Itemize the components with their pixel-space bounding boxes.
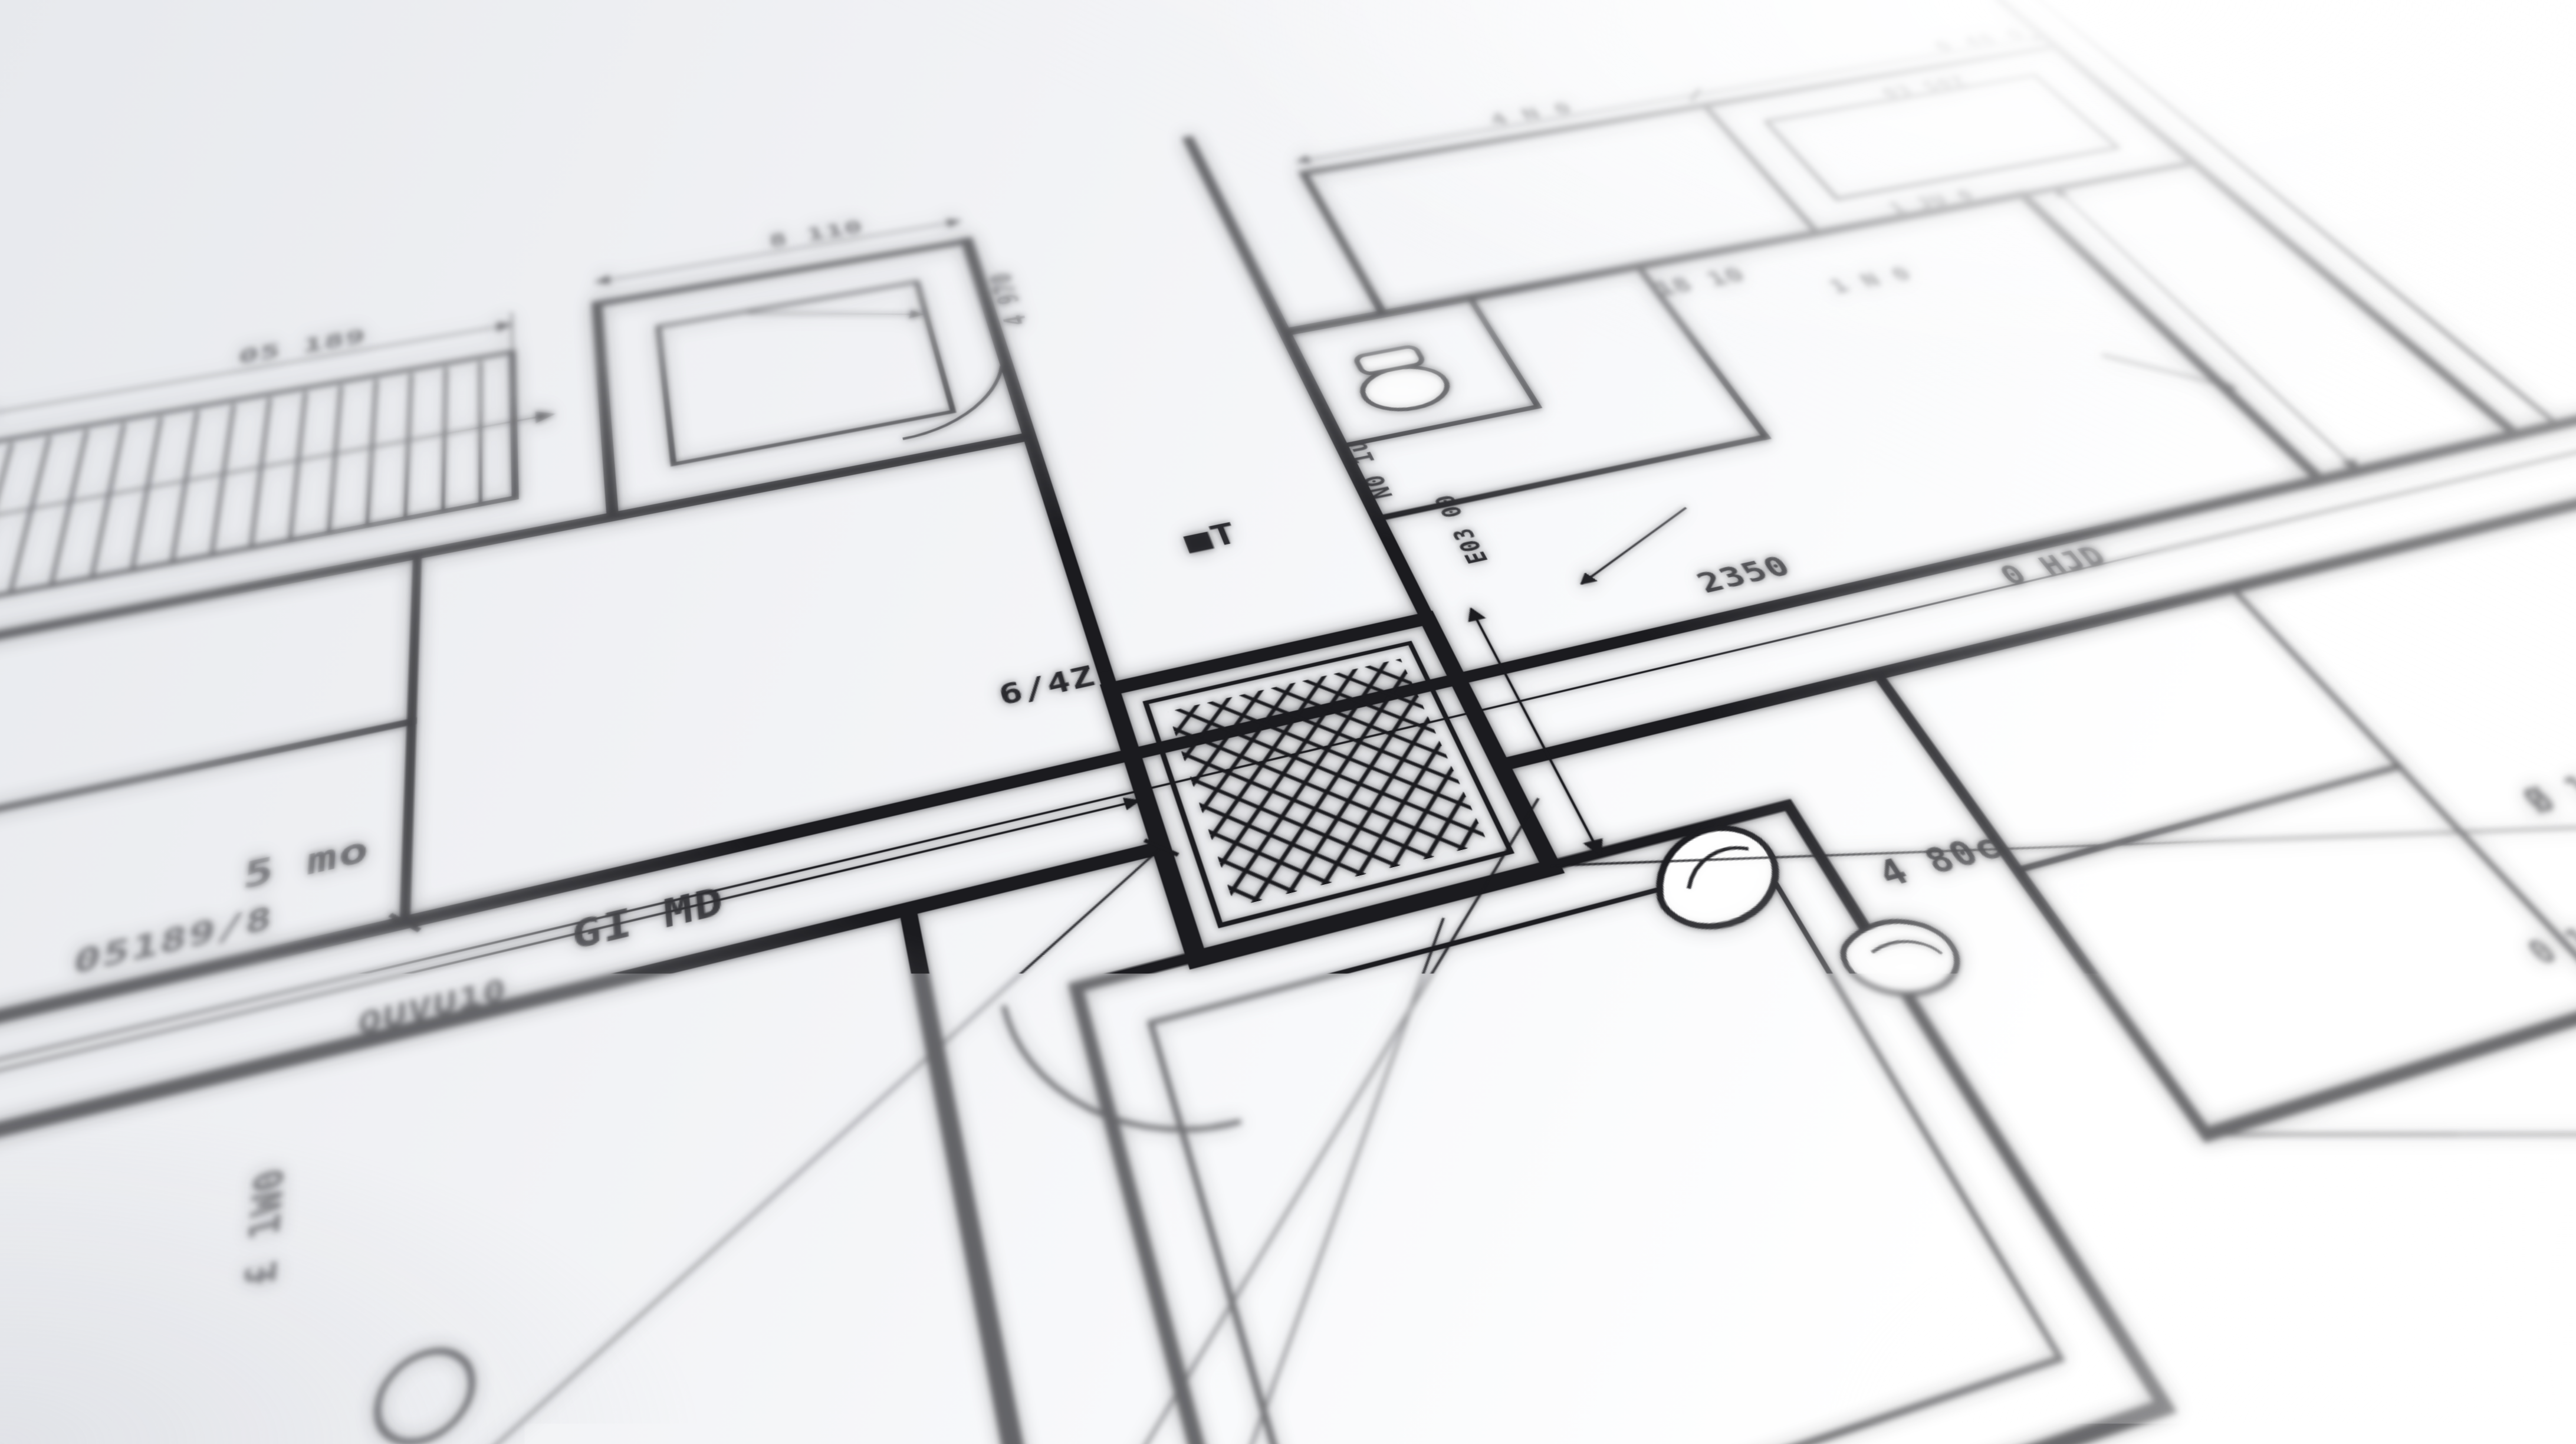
construction-lines — [0, 467, 2576, 1444]
shaft-hatch — [807, 540, 1914, 1069]
dimension-label: 03 S0Z — [1877, 74, 1973, 101]
dimension-lines — [0, 32, 2576, 1444]
toilet-fixture — [1345, 344, 1457, 416]
dimension-label: GI MD — [571, 880, 727, 959]
elevator-shaft — [807, 540, 1914, 1069]
stair-treads — [0, 361, 481, 598]
dimension-label: 6/4Z- — [995, 654, 1123, 712]
leaf-shape — [1838, 917, 1964, 999]
dimension-label: 8 110 — [767, 216, 865, 251]
dimension-label: 0 48 0 — [1929, 27, 2031, 55]
dimension-label: QUVU10 — [357, 971, 507, 1043]
dimension-label: £ 1W0 — [234, 1162, 294, 1293]
dimension-label: 1 N 0 — [1824, 264, 1917, 297]
walls — [0, 0, 2576, 1444]
dimension-label: 0 100 — [2518, 910, 2576, 972]
plan-layer-in-focus: 05 1898 1104 N 003 S0Z0 48 0WR 044 01,50… — [0, 0, 2576, 1444]
dimension-label: 18 10 — [1648, 264, 1752, 300]
blueprint-photo: 05 1898 1104 N 003 S0Z0 48 0WR 044 01,50… — [0, 0, 2576, 1444]
drain-circle — [376, 1340, 472, 1444]
leaf-shape — [1630, 813, 1803, 944]
dimension-label: 4 N 0 — [1486, 100, 1577, 129]
dimension-label: 05 189 — [236, 325, 367, 368]
dimension-label: 5 mo — [241, 828, 371, 898]
floor-plan-drawing: 05 1898 1104 N 003 S0Z0 48 0WR 044 01,50… — [0, 24, 2576, 1444]
dimension-label: 4 80c — [1869, 826, 2012, 895]
dimension-label: E03 00 — [1428, 492, 1494, 566]
dimension-label: Ø 100 — [2512, 757, 2576, 821]
dimension-label: 2350 — [1690, 549, 1798, 599]
plan-sheet: 05 1898 1104 N 003 S0Z0 48 0WR 044 01,50… — [0, 24, 2576, 1444]
dimension-label: ■T — [1179, 517, 1244, 560]
